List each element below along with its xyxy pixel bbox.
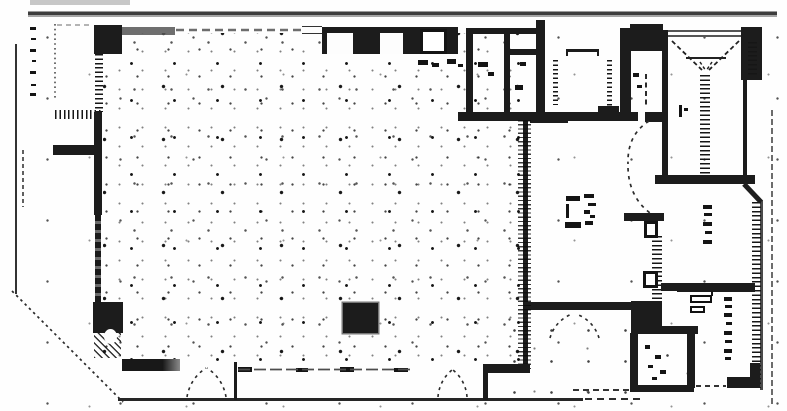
linework-overlay	[0, 0, 787, 411]
door-swing-arc	[576, 314, 599, 338]
sliding-door-s-curve	[628, 121, 649, 164]
wall-chamfer	[744, 184, 761, 202]
elevator-cab-symbol	[672, 41, 702, 70]
door-swing-arc	[207, 368, 226, 397]
floor-plan-sheet	[0, 0, 787, 411]
elevator-cab-symbol	[709, 41, 739, 70]
door-swing-arc	[453, 370, 467, 397]
chamfered-site-line	[12, 291, 123, 402]
door-swing-arc	[550, 314, 572, 338]
door-swing-arc	[438, 370, 452, 397]
sliding-door-s-curve	[628, 168, 650, 213]
door-swing-arc	[187, 368, 206, 397]
